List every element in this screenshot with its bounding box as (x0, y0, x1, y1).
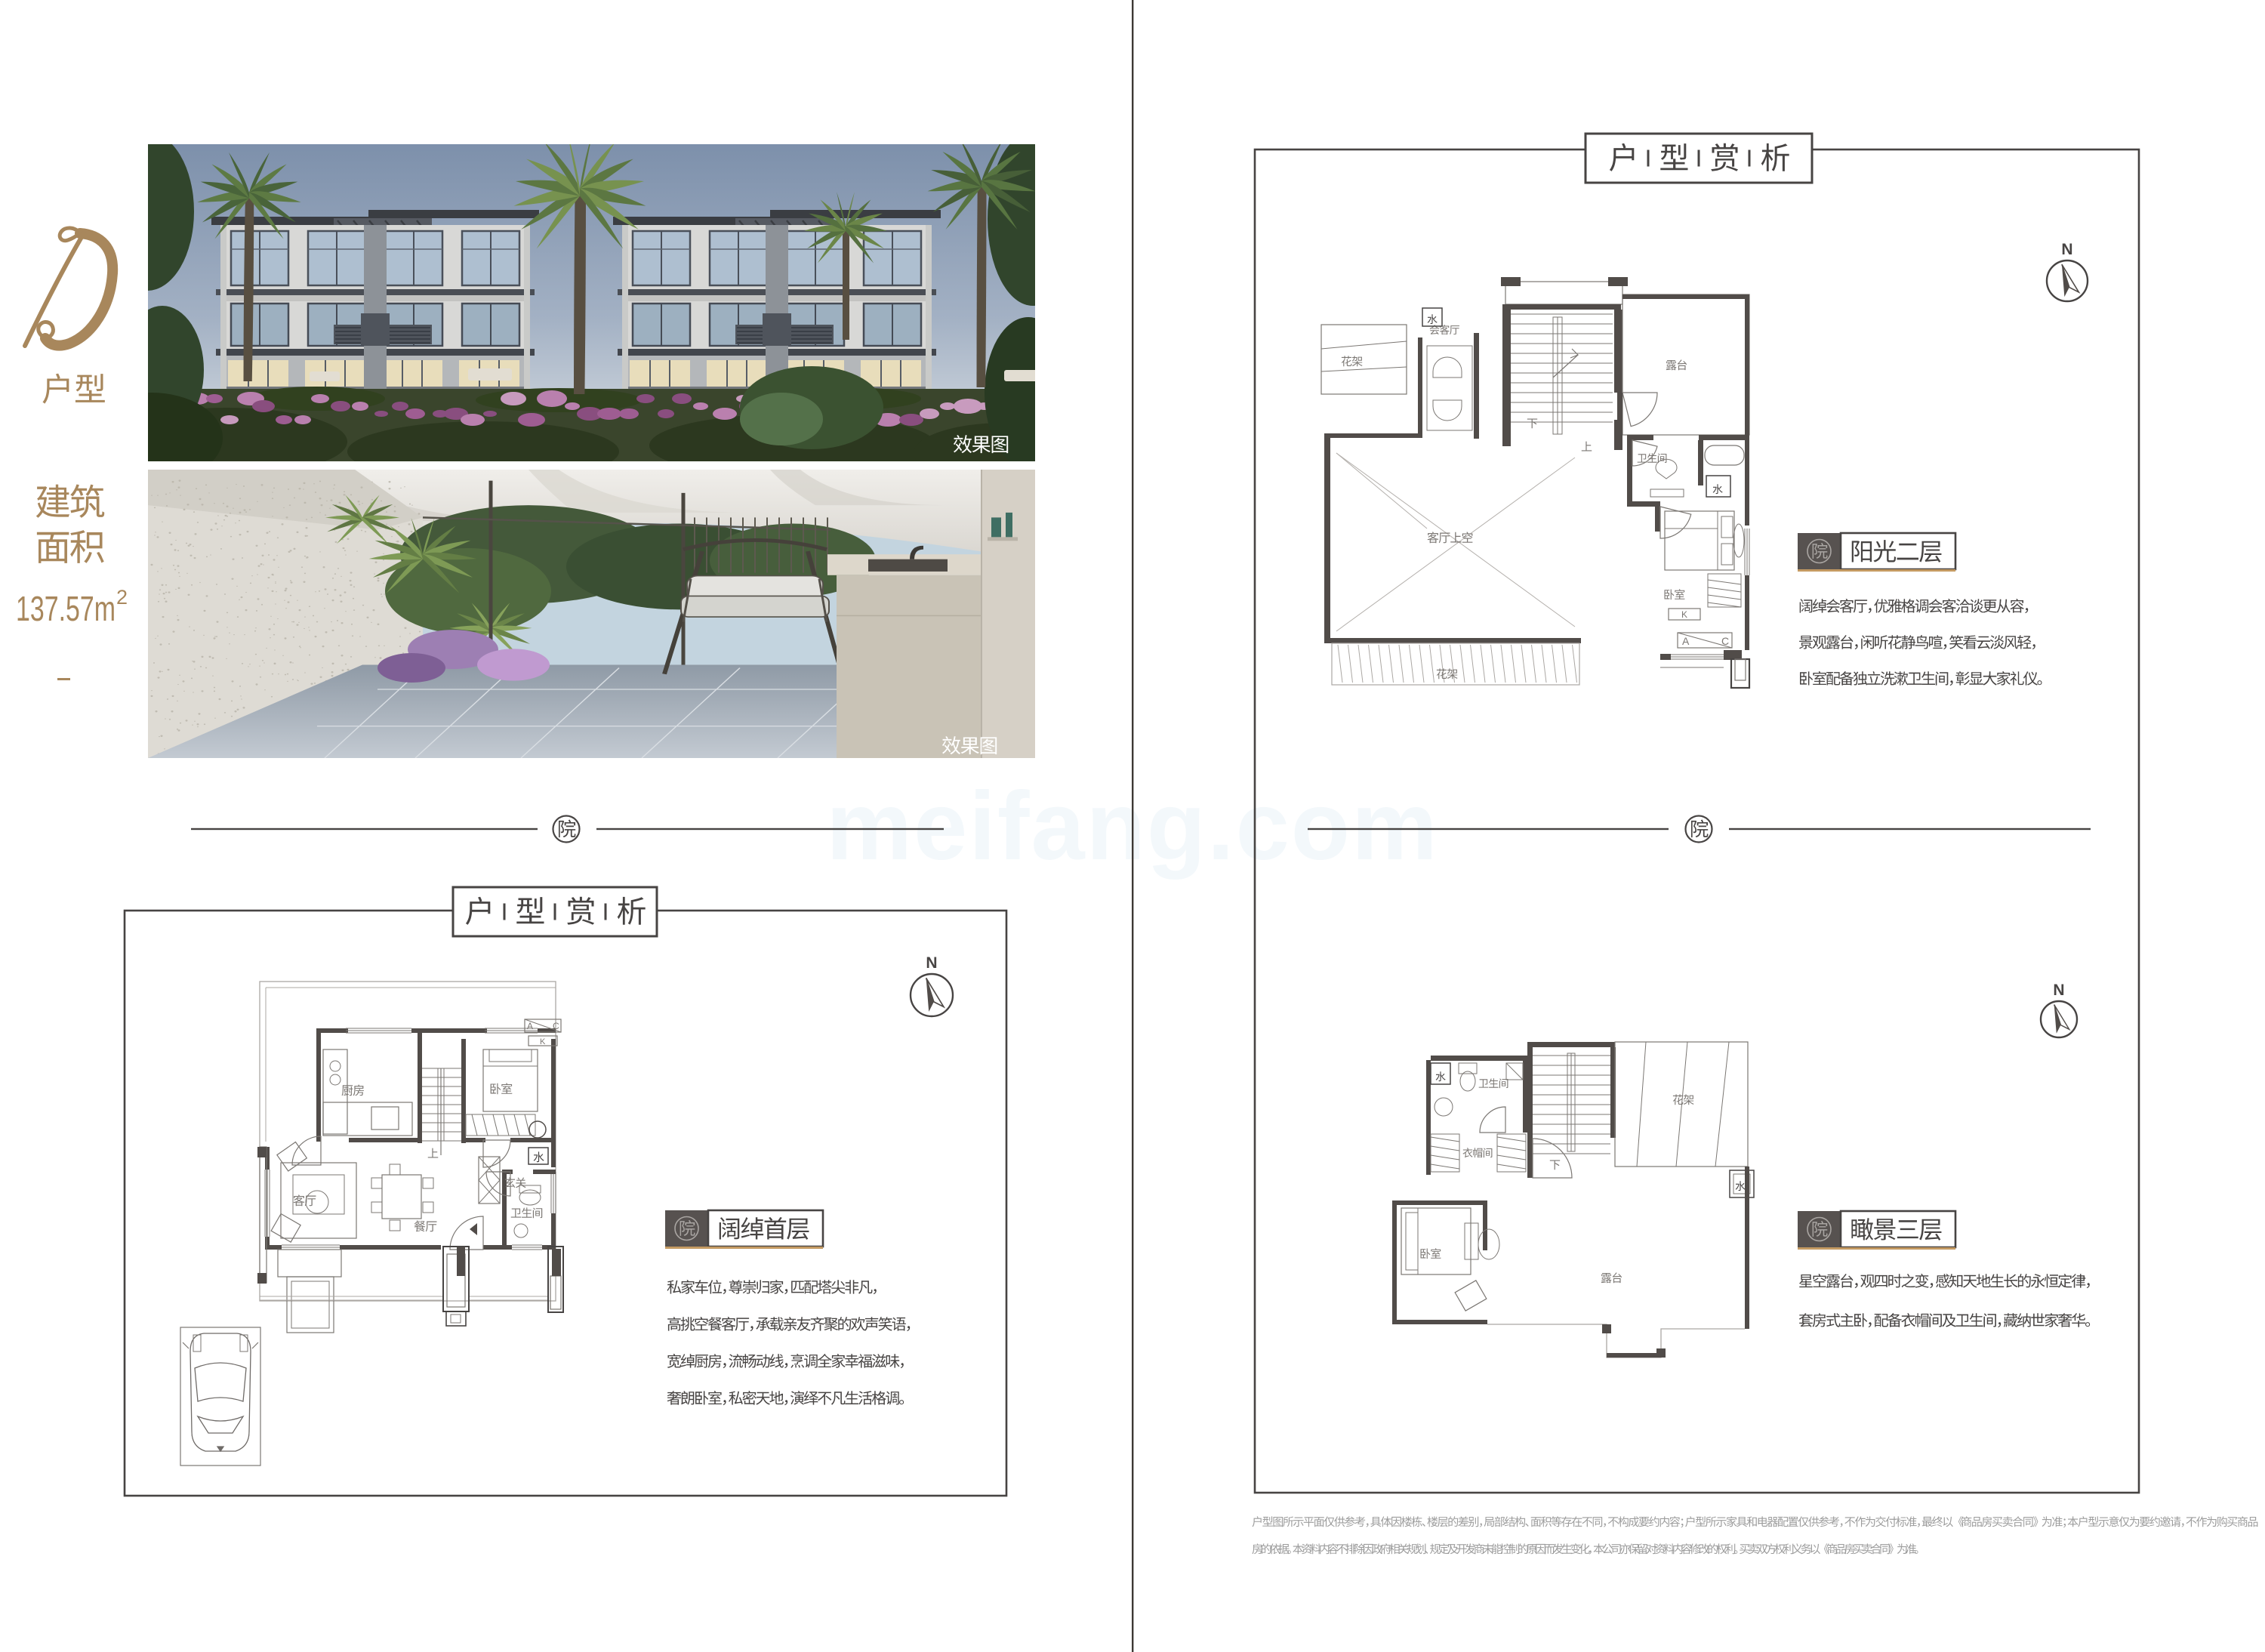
svg-text:K: K (1681, 609, 1687, 620)
svg-text:N: N (926, 954, 937, 972)
svg-text:A: A (527, 1021, 533, 1031)
svg-text:C: C (553, 1021, 559, 1031)
svg-text:K: K (540, 1037, 546, 1046)
svg-text:137.57m: 137.57m (16, 589, 116, 628)
svg-text:A: A (1682, 635, 1690, 647)
svg-text:2: 2 (116, 586, 128, 609)
svg-text:C: C (1721, 635, 1729, 647)
svg-text:N: N (2061, 241, 2072, 258)
svg-text:N: N (2053, 982, 2064, 999)
